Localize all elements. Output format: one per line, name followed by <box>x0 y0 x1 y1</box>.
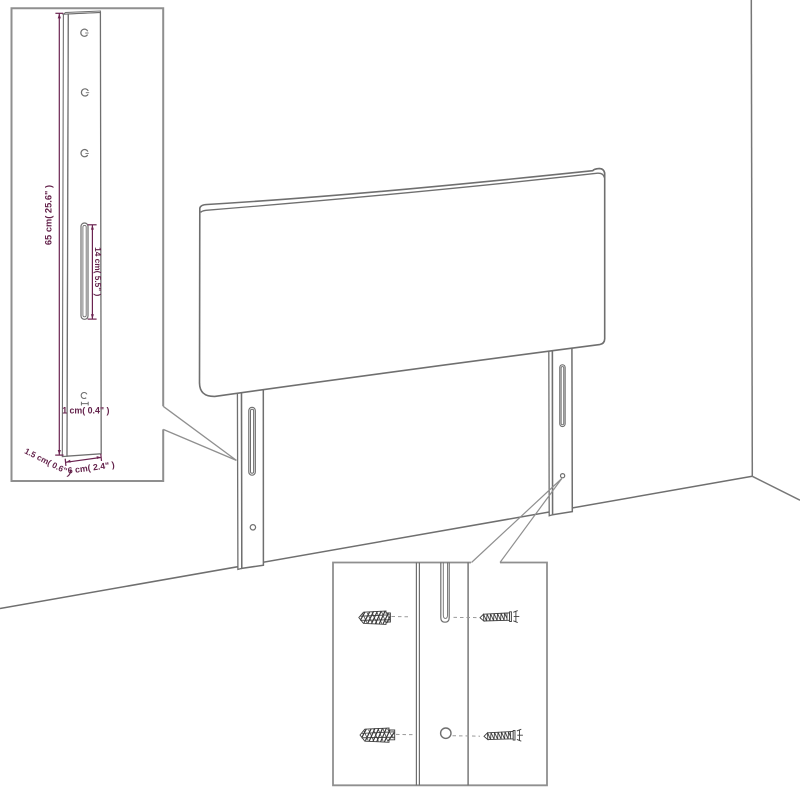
svg-text:14 cm( 5.5" ): 14 cm( 5.5" ) <box>93 247 103 296</box>
svg-text:1 cm( 0.4" ): 1 cm( 0.4" ) <box>62 406 109 416</box>
svg-text:65 cm( 25.6" ): 65 cm( 25.6" ) <box>43 185 53 245</box>
